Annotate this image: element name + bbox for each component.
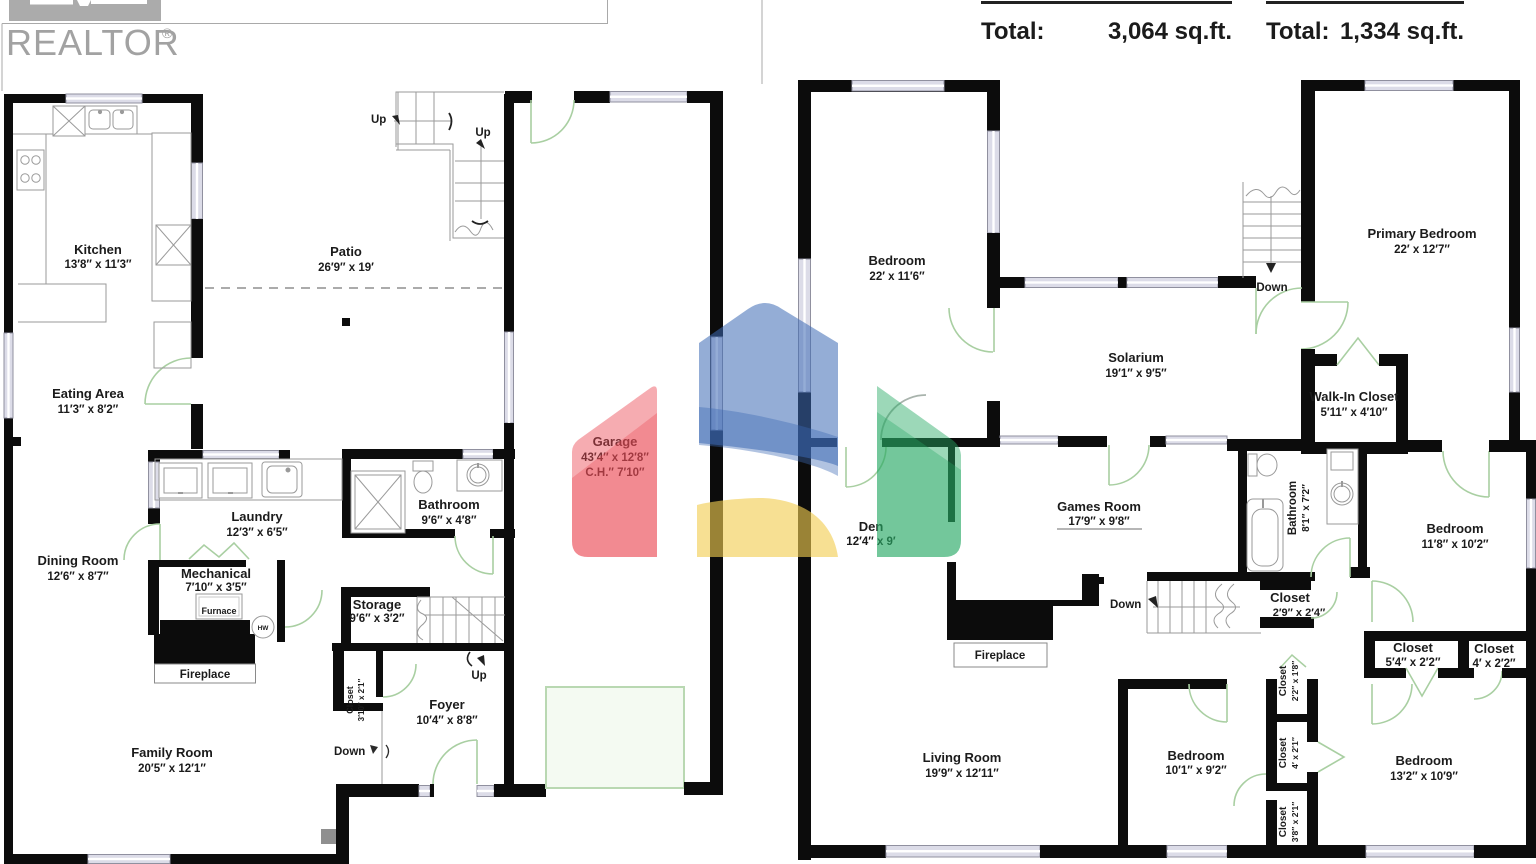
svg-text:2′9″ x 2′4″: 2′9″ x 2′4″ [1273,607,1326,619]
svg-text:19′1″ x 9′5″: 19′1″ x 9′5″ [1105,368,1167,380]
svg-text:22′ x 11′6″: 22′ x 11′6″ [869,271,925,283]
svg-text:Down: Down [334,746,365,758]
svg-text:20′5″ x 12′1″: 20′5″ x 12′1″ [138,763,206,775]
svg-text:HW: HW [258,625,270,632]
svg-text:26′9″ x 19′: 26′9″ x 19′ [318,262,374,274]
svg-text:1,334 sq.ft.: 1,334 sq.ft. [1340,18,1464,45]
svg-text:Primary Bedroom: Primary Bedroom [1367,226,1476,241]
svg-text:Up: Up [471,670,486,682]
svg-text:13′2″ x 10′9″: 13′2″ x 10′9″ [1390,771,1458,783]
svg-text:9′6″ x 4′8″: 9′6″ x 4′8″ [422,515,477,527]
svg-text:8′1″ x 7′2″: 8′1″ x 7′2″ [1301,484,1312,532]
svg-text:Family Room: Family Room [131,745,213,760]
svg-text:13′8″ x 11′3″: 13′8″ x 11′3″ [64,259,132,271]
svg-text:Closet: Closet [1393,640,1433,655]
svg-text:Closet: Closet [1474,641,1514,656]
svg-text:2′2″ x 1′8″: 2′2″ x 1′8″ [1290,661,1300,702]
svg-text:Up: Up [475,127,490,139]
svg-text:10′4″ x 8′8″: 10′4″ x 8′8″ [416,715,478,727]
svg-text:Living Room: Living Room [923,750,1002,765]
svg-text:Mechanical: Mechanical [181,566,251,581]
svg-text:Closet: Closet [345,686,355,714]
svg-text:Bedroom: Bedroom [1167,748,1224,763]
svg-text:Fireplace: Fireplace [180,669,231,681]
svg-text:Bedroom: Bedroom [868,253,925,268]
svg-text:3′8″ x 2′1″: 3′8″ x 2′1″ [1290,802,1300,843]
svg-text:Solarium: Solarium [1108,350,1164,365]
svg-text:10′1″ x 9′2″: 10′1″ x 9′2″ [1165,765,1227,777]
svg-text:Closet: Closet [1278,737,1289,768]
svg-text:Down: Down [1110,599,1141,611]
svg-text:Patio: Patio [330,244,362,259]
svg-text:11′3″ x 8′2″: 11′3″ x 8′2″ [58,404,119,416]
svg-text:Bedroom: Bedroom [1395,753,1452,768]
svg-text:3′10″ x 2′1″: 3′10″ x 2′1″ [357,679,366,722]
svg-text:5′11″ x 4′10″: 5′11″ x 4′10″ [1320,407,1388,419]
svg-text:Closet: Closet [1278,665,1289,696]
svg-text:17′9″ x 9′8″: 17′9″ x 9′8″ [1068,516,1130,528]
svg-text:Games Room: Games Room [1057,499,1141,514]
svg-text:Bathroom: Bathroom [1287,481,1299,535]
svg-text:Total:: Total: [1266,18,1330,45]
svg-text:11′8″ x 10′2″: 11′8″ x 10′2″ [1421,539,1489,551]
svg-text:4′ x 2′1″: 4′ x 2′1″ [1290,737,1300,769]
svg-text:12′3″ x 6′5″: 12′3″ x 6′5″ [226,527,288,539]
svg-text:Up: Up [371,114,386,126]
svg-text:REALTOR: REALTOR [6,22,180,63]
svg-text:Eating Area: Eating Area [52,386,125,401]
svg-text:Laundry: Laundry [231,509,283,524]
svg-text:5′4″ x 2′2″: 5′4″ x 2′2″ [1386,657,1441,669]
svg-text:Bathroom: Bathroom [418,497,479,512]
svg-text:9′6″ x 3′2″: 9′6″ x 3′2″ [350,613,405,625]
svg-text:Furnace: Furnace [201,606,236,616]
svg-text:Bedroom: Bedroom [1426,521,1483,536]
svg-text:Fireplace: Fireplace [975,650,1026,662]
svg-text:Kitchen: Kitchen [74,242,122,257]
svg-text:3,064 sq.ft.: 3,064 sq.ft. [1108,18,1232,45]
svg-text:Closet: Closet [1278,806,1289,837]
svg-text:22′ x 12′7″: 22′ x 12′7″ [1394,244,1450,256]
svg-text:7′10″ x 3′5″: 7′10″ x 3′5″ [185,582,247,594]
svg-text:12′6″ x 8′7″: 12′6″ x 8′7″ [47,571,109,583]
svg-text:Foyer: Foyer [429,697,464,712]
svg-text:4′ x 2′2″: 4′ x 2′2″ [1473,658,1516,670]
svg-text:Closet: Closet [1270,590,1310,605]
svg-text:®: ® [162,25,173,41]
svg-text:Storage: Storage [353,597,401,612]
svg-text:Down: Down [1256,282,1287,294]
svg-text:Walk-In Closet: Walk-In Closet [1309,389,1399,404]
svg-text:19′9″ x 12′11″: 19′9″ x 12′11″ [925,768,999,780]
svg-text:Total:: Total: [981,18,1045,45]
svg-text:Dining Room: Dining Room [38,553,119,568]
